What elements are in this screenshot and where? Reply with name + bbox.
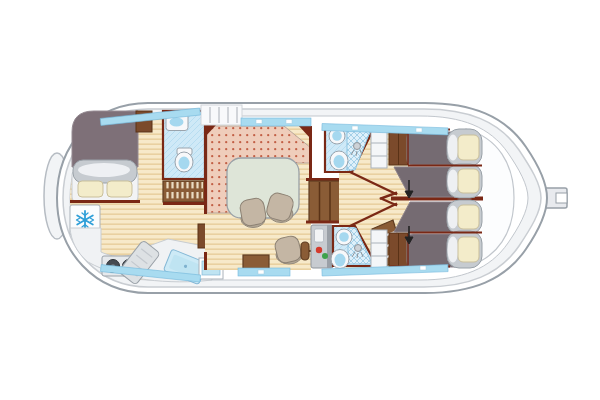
salon-left-wall <box>204 252 207 270</box>
boat-floor-plan <box>0 0 600 400</box>
roof-steps <box>201 105 242 125</box>
window-latch <box>258 270 264 274</box>
salon-right-wall <box>309 126 312 178</box>
window-latch <box>420 266 426 270</box>
bed-cover-fold <box>448 206 459 229</box>
panel-button-red <box>316 247 322 253</box>
window-latch <box>256 120 262 124</box>
pillow <box>458 135 479 160</box>
single-bed-4 <box>407 231 482 268</box>
cabin-wall <box>70 200 140 203</box>
pillow <box>458 237 479 262</box>
shelf-wall <box>163 202 205 205</box>
salon-left-wall <box>204 126 207 214</box>
bow-section <box>325 128 514 269</box>
storage-shelf <box>163 181 205 205</box>
washbasin-bowl <box>339 232 349 242</box>
shower-head-icon <box>355 245 362 252</box>
window-latch <box>352 126 358 130</box>
pillow <box>458 205 479 229</box>
shower-head-icon <box>354 143 361 150</box>
toilet-seat <box>179 157 190 170</box>
aft-bathroom <box>163 111 205 205</box>
pillow <box>458 169 479 193</box>
washbasin-bowl <box>332 131 342 141</box>
bed-cover-fold <box>448 135 459 161</box>
bed-cover-fold <box>448 237 459 263</box>
bed-cover-fold <box>448 170 459 193</box>
panel-display <box>315 229 324 242</box>
window-latch <box>416 128 422 132</box>
companionway-stairs <box>306 178 343 224</box>
window-strip <box>241 118 311 126</box>
washbasin <box>170 118 184 127</box>
window-latch <box>286 120 292 124</box>
toilet-seat <box>334 155 345 168</box>
pillow <box>78 181 103 197</box>
pillow <box>107 181 132 197</box>
bed-cover-fold <box>78 163 130 177</box>
panel-button-green <box>322 253 328 259</box>
control-panel <box>311 225 333 268</box>
chair <box>239 197 267 227</box>
cabinet <box>371 230 387 268</box>
cabinet <box>371 130 387 168</box>
screenshot-canvas <box>0 0 600 400</box>
toilet-seat <box>335 254 346 267</box>
stair-wall <box>306 221 343 224</box>
